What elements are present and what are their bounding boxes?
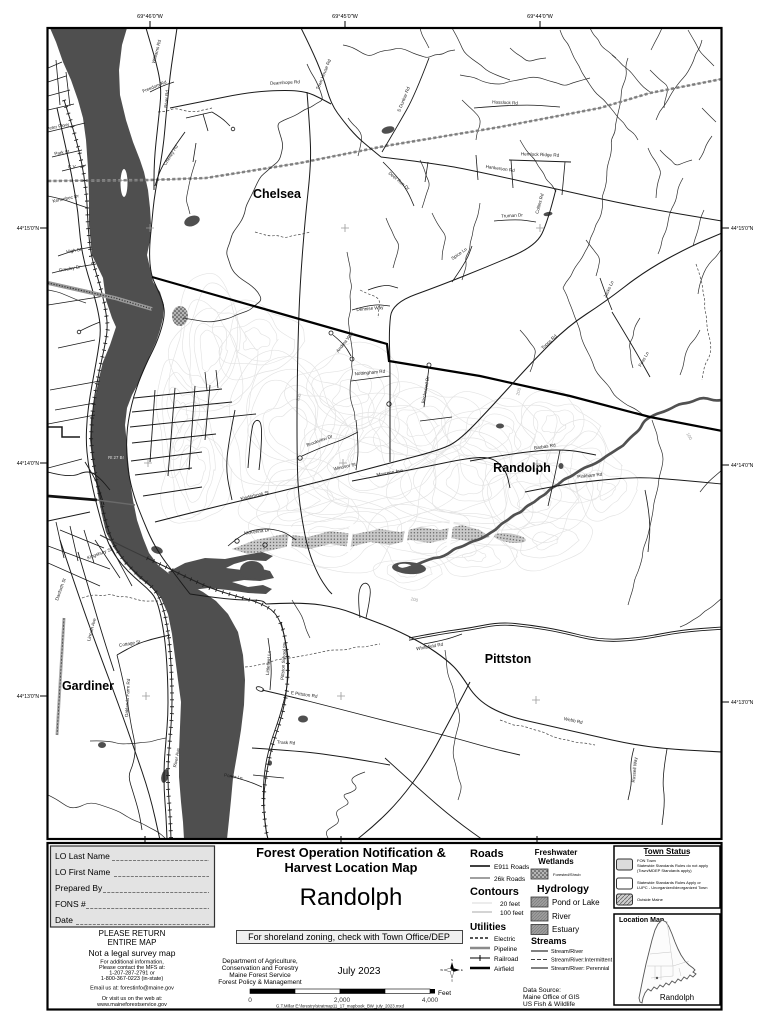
svg-text:PLEASE RETURN: PLEASE RETURN <box>99 929 166 938</box>
svg-text:Stream/River:Intermittent: Stream/River:Intermittent <box>551 958 613 964</box>
svg-text:Trask Rd: Trask Rd <box>277 740 296 746</box>
svg-text:W: W <box>440 968 443 972</box>
svg-text:Forested/Shrub: Forested/Shrub <box>553 872 581 877</box>
svg-text:S: S <box>451 979 453 983</box>
svg-text:Railroad: Railroad <box>494 956 519 963</box>
svg-text:FONS #: FONS # <box>55 899 86 909</box>
svg-text:Randolph: Randolph <box>300 884 403 911</box>
svg-text:69°44'0"W: 69°44'0"W <box>527 14 553 20</box>
svg-text:Airfield: Airfield <box>494 966 514 973</box>
svg-text:(Town/MDEP Standards apply): (Town/MDEP Standards apply) <box>637 868 692 873</box>
svg-text:Freshwater: Freshwater <box>535 848 578 857</box>
svg-text:LO First Name: LO First Name <box>55 867 111 877</box>
svg-text:Not a legal survey map: Not a legal survey map <box>89 948 176 958</box>
svg-text:Department of Agriculture,: Department of Agriculture, <box>222 958 298 965</box>
svg-text:Conservation and Forestry: Conservation and Forestry <box>222 965 299 972</box>
svg-text:Contours: Contours <box>470 886 519 898</box>
svg-text:Rt 27 Br: Rt 27 Br <box>108 455 125 460</box>
svg-text:Pittston: Pittston <box>485 652 532 666</box>
svg-text:For shoreland zoning, check wi: For shoreland zoning, check with Town Of… <box>248 932 450 942</box>
svg-text:Hydrology: Hydrology <box>537 883 589 895</box>
svg-text:Location Map: Location Map <box>619 917 664 924</box>
svg-text:G.T.Millar E:\forestry\stra: G.T.Millar E:\forestry\stratmap11_17_map… <box>276 1004 405 1009</box>
svg-text:Stream/River: Stream/River <box>551 949 583 955</box>
svg-text:www.maineforestservice.gov: www.maineforestservice.gov <box>96 1002 167 1008</box>
svg-text:Maine Office of GIS: Maine Office of GIS <box>523 994 580 1001</box>
svg-text:4,000: 4,000 <box>422 997 439 1004</box>
svg-text:LUPC - Unorganized/deorganized: LUPC - Unorganized/deorganized Town <box>637 885 707 890</box>
svg-text:20 feet: 20 feet <box>500 901 520 908</box>
svg-text:US Fish & Wildlife: US Fish & Wildlife <box>523 1001 575 1008</box>
svg-text:Roads: Roads <box>470 848 504 860</box>
svg-text:LO Last Name: LO Last Name <box>55 851 110 861</box>
svg-text:Pond or Lake: Pond or Lake <box>552 898 600 907</box>
svg-text:Forest Operation Notification: Forest Operation Notification & <box>256 845 446 860</box>
svg-text:Randolph: Randolph <box>493 461 551 475</box>
svg-text:Randolph: Randolph <box>660 993 694 1002</box>
svg-text:Gardiner: Gardiner <box>62 679 114 693</box>
svg-text:Prepared By: Prepared By <box>55 883 103 893</box>
svg-text:Date: Date <box>55 915 73 925</box>
svg-text:ENTIRE MAP: ENTIRE MAP <box>108 938 157 947</box>
svg-text:E: E <box>461 968 463 972</box>
svg-text:Chelsea: Chelsea <box>253 187 302 201</box>
svg-text:Email us at: forestinfo@maine.: Email us at: forestinfo@maine.gov <box>90 986 174 992</box>
svg-text:26k Roads: 26k Roads <box>494 876 526 883</box>
svg-text:Estuary: Estuary <box>552 925 579 934</box>
svg-text:Electric: Electric <box>494 936 516 943</box>
svg-text:44°15'0"N: 44°15'0"N <box>731 226 754 232</box>
svg-text:44°14'0"N: 44°14'0"N <box>17 461 40 467</box>
svg-text:Utilities: Utilities <box>470 922 507 933</box>
svg-text:69°46'0"W: 69°46'0"W <box>137 14 163 20</box>
svg-text:44°14'0"N: 44°14'0"N <box>731 463 754 469</box>
svg-text:Forest Policy & Management: Forest Policy & Management <box>218 979 302 986</box>
svg-text:0: 0 <box>248 997 252 1004</box>
svg-text:44°13'0"N: 44°13'0"N <box>731 700 754 706</box>
svg-text:Stream/River: Perennial: Stream/River: Perennial <box>551 966 609 972</box>
svg-text:Data Source:: Data Source: <box>523 987 561 994</box>
svg-text:Town Status: Town Status <box>644 847 692 856</box>
svg-text:River: River <box>552 912 571 921</box>
svg-text:44°13'0"N: 44°13'0"N <box>17 694 40 700</box>
svg-text:Harvest Location Map: Harvest Location Map <box>285 860 418 875</box>
svg-text:100 feet: 100 feet <box>500 910 524 917</box>
svg-text:N: N <box>451 958 453 962</box>
svg-text:Pipeline: Pipeline <box>494 946 518 953</box>
svg-text:Wetlands: Wetlands <box>538 857 574 866</box>
svg-text:Outside Maine: Outside Maine <box>637 897 664 902</box>
svg-text:Streams: Streams <box>531 936 567 946</box>
svg-text:1-800-367-0223 (in-state): 1-800-367-0223 (in-state) <box>101 976 164 982</box>
svg-text:Maine Forest Service: Maine Forest Service <box>229 972 291 979</box>
svg-text:K V: K V <box>68 164 76 169</box>
svg-text:Feet: Feet <box>438 990 451 997</box>
svg-text:E911 Roads: E911 Roads <box>494 864 530 871</box>
svg-text:44°15'0"N: 44°15'0"N <box>17 226 40 232</box>
svg-text:69°45'0"W: 69°45'0"W <box>332 14 358 20</box>
svg-text:July 2023: July 2023 <box>338 966 381 977</box>
